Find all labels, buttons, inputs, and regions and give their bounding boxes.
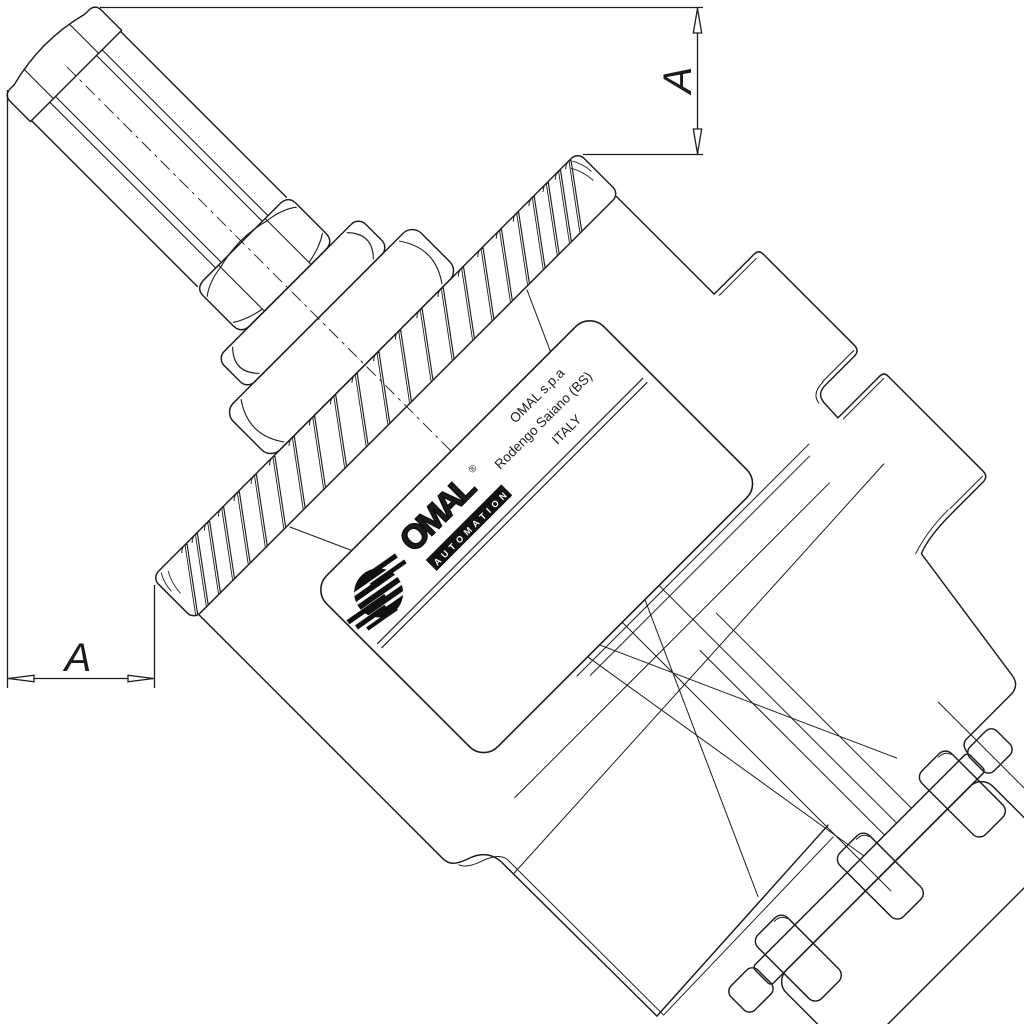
svg-text:A: A: [656, 67, 700, 96]
svg-text:A: A: [63, 636, 92, 680]
